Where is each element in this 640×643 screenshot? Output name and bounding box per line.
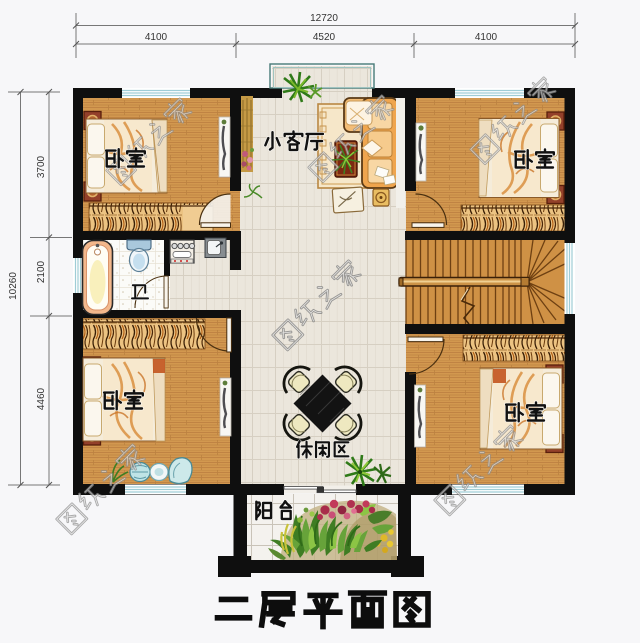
svg-text:4520: 4520 <box>313 32 336 43</box>
svg-text:4460: 4460 <box>36 387 47 410</box>
svg-text:3700: 3700 <box>36 155 47 178</box>
svg-text:10260: 10260 <box>8 272 19 300</box>
svg-text:12720: 12720 <box>310 13 338 24</box>
svg-text:2100: 2100 <box>36 260 47 283</box>
svg-text:4100: 4100 <box>475 32 498 43</box>
svg-text:4100: 4100 <box>145 32 168 43</box>
